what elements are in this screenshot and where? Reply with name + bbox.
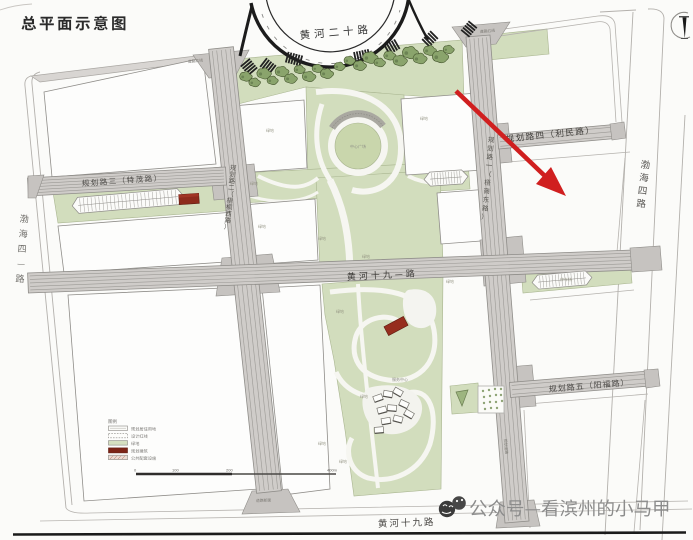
svg-text:400m: 400m	[327, 468, 338, 473]
svg-text:100: 100	[172, 468, 179, 473]
svg-text:200: 200	[226, 468, 233, 473]
